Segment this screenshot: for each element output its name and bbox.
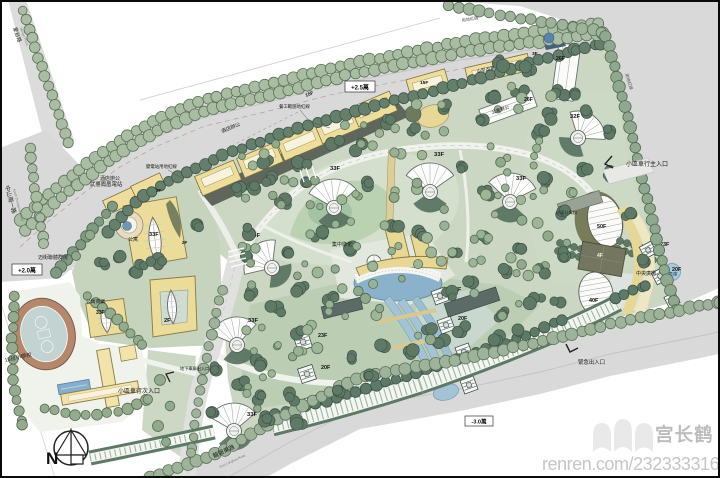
svg-text:3F: 3F — [532, 51, 538, 57]
svg-text:小區車行主入口: 小區車行主入口 — [626, 160, 668, 168]
svg-text:4F: 4F — [597, 253, 603, 259]
svg-text:32F: 32F — [570, 114, 580, 120]
svg-text:-3.0萬: -3.0萬 — [471, 418, 487, 426]
svg-text:變電站用地紅線: 變電站用地紅線 — [146, 163, 177, 170]
svg-text:50F: 50F — [597, 224, 607, 230]
svg-text:20F: 20F — [321, 365, 331, 371]
svg-text:小區公寓辦: 小區公寓辦 — [556, 209, 577, 216]
svg-text:迈街聯體群房: 迈街聯體群房 — [38, 254, 68, 261]
svg-text:33F: 33F — [247, 412, 257, 418]
svg-text:renren.com/232333316: renren.com/232333316 — [542, 454, 720, 474]
svg-text:23F: 23F — [318, 333, 328, 339]
svg-text:33F: 33F — [149, 232, 159, 238]
svg-text:緊急出入口: 緊急出入口 — [578, 358, 605, 366]
svg-text:2F: 2F — [182, 240, 187, 245]
svg-text:酒店辦公: 酒店辦公 — [100, 175, 120, 182]
svg-text:33F: 33F — [248, 318, 258, 324]
svg-text:3F: 3F — [156, 188, 161, 193]
svg-text:宫长鹤: 宫长鹤 — [655, 424, 714, 445]
svg-text:公寓: 公寓 — [128, 236, 138, 243]
svg-text:集中綠化: 集中綠化 — [332, 241, 352, 248]
svg-text:33F: 33F — [330, 166, 340, 172]
svg-text:20F: 20F — [672, 267, 682, 273]
svg-text:33F: 33F — [96, 310, 105, 316]
svg-text:小區車行次入口: 小區車行次入口 — [118, 387, 160, 395]
svg-text:33F: 33F — [516, 176, 526, 182]
svg-text:N: N — [46, 449, 58, 468]
svg-text:餐工範圍地紅線: 餐工範圍地紅線 — [279, 103, 310, 110]
svg-text:40F: 40F — [589, 298, 599, 304]
svg-text:+2.5萬: +2.5萬 — [351, 84, 369, 92]
svg-text:中央廣場: 中央廣場 — [636, 270, 656, 277]
svg-text:公寓商業: 公寓商業 — [86, 298, 105, 305]
svg-text:+2.0萬: +2.0萬 — [18, 267, 36, 275]
svg-text:33F: 33F — [434, 152, 444, 158]
svg-text:2F: 2F — [164, 318, 171, 324]
svg-text:地下車庫出入口: 地下車庫出入口 — [180, 365, 209, 372]
svg-text:15F: 15F — [420, 80, 428, 86]
svg-text:26F: 26F — [556, 56, 565, 62]
svg-text:26F: 26F — [524, 97, 533, 103]
